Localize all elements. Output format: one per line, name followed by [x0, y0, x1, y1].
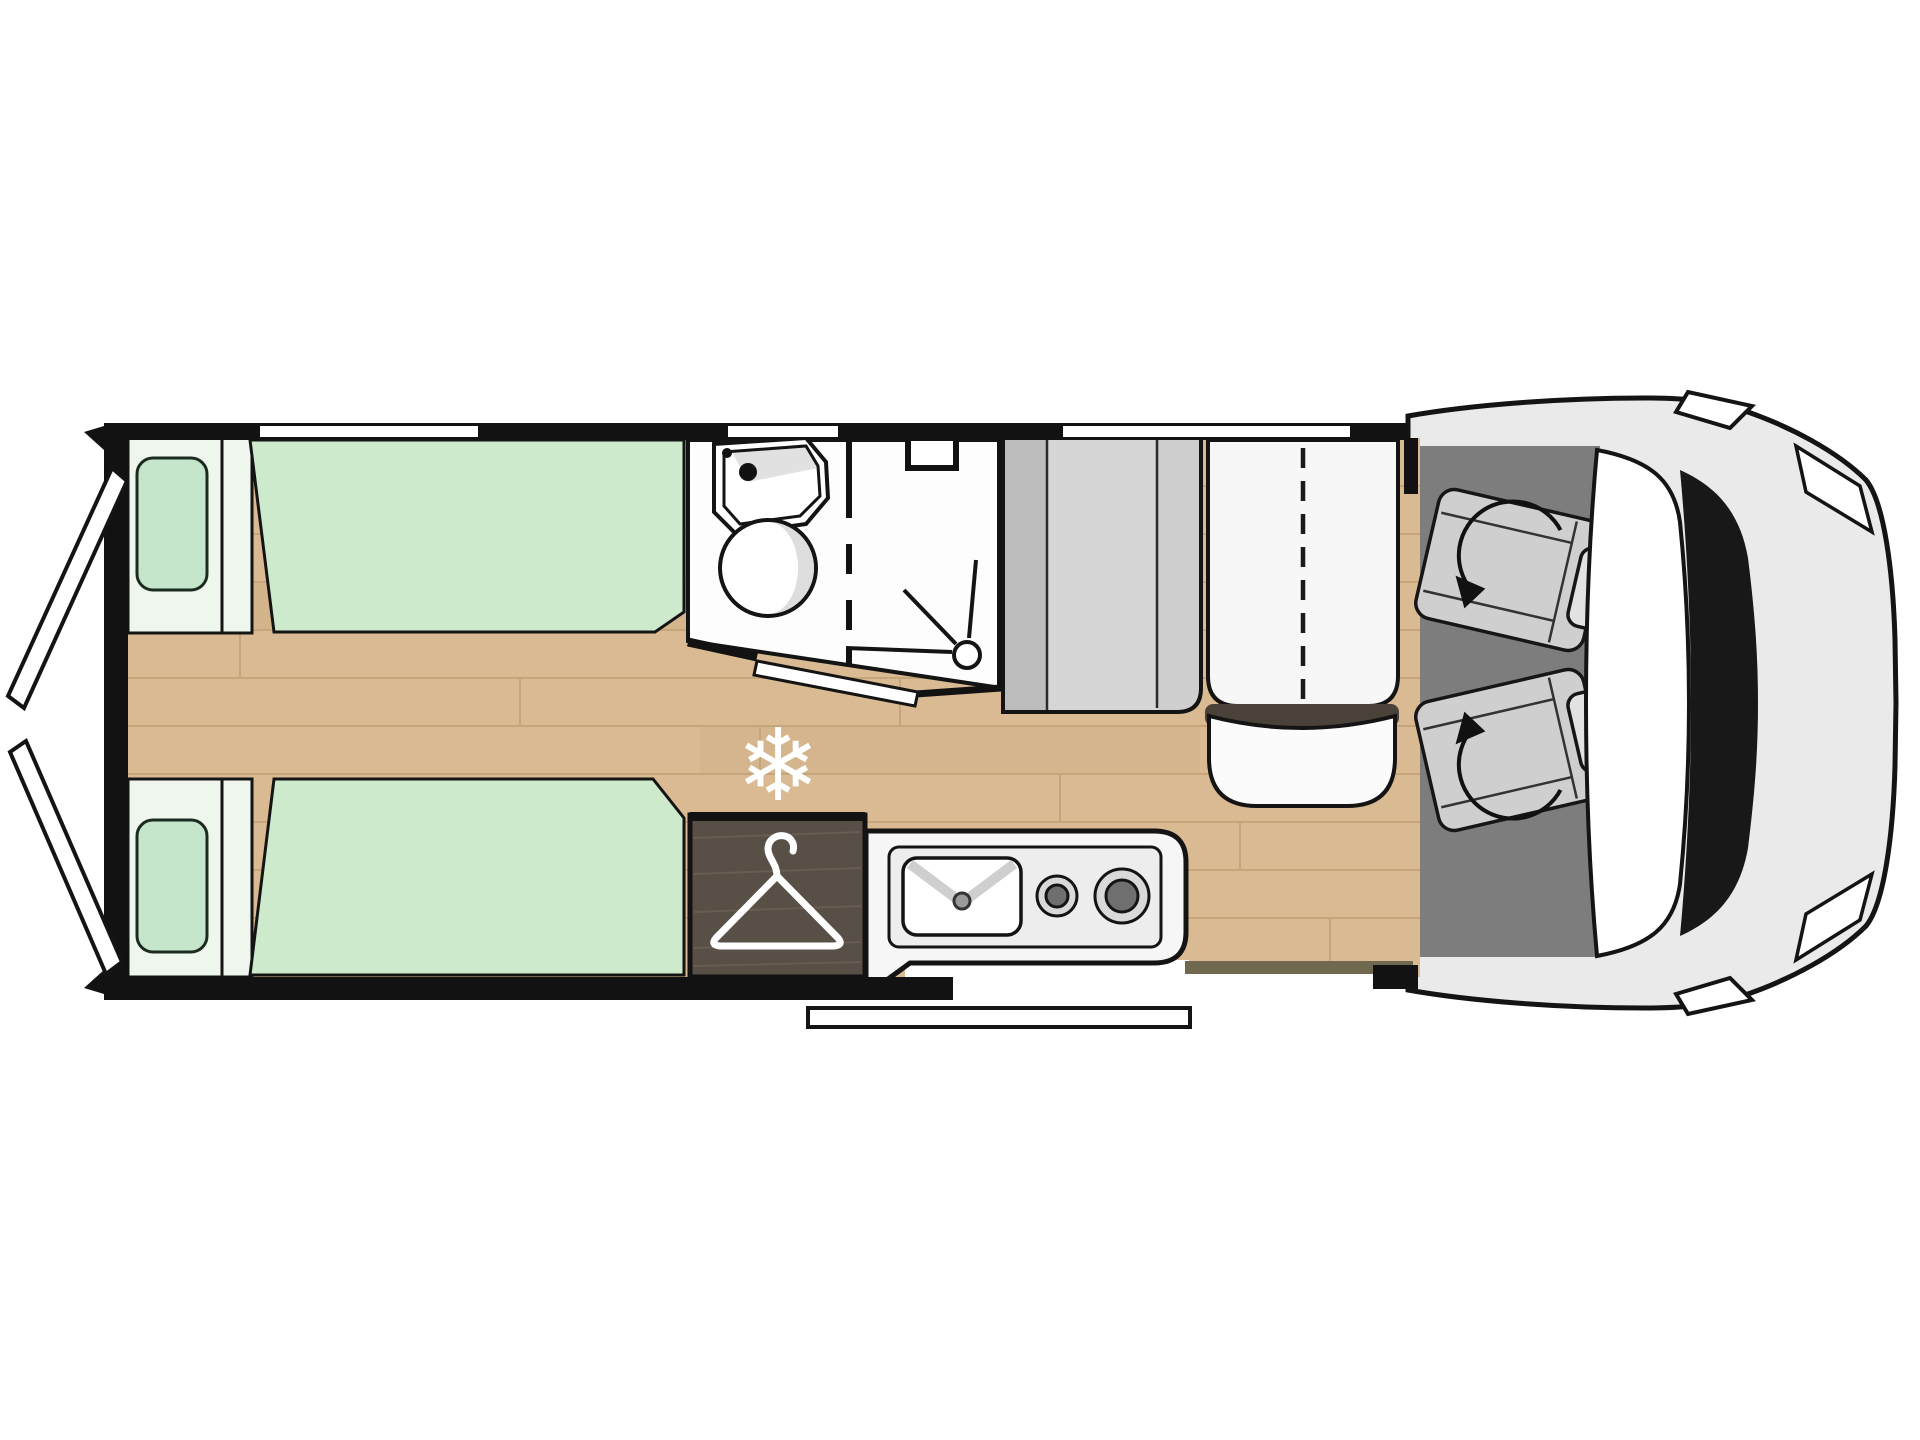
pillow-top	[137, 458, 207, 590]
fridge-snowflake-icon: ❄	[736, 707, 820, 824]
roof-vent-icon	[908, 438, 956, 468]
floorplan-canvas: ❄	[0, 0, 1920, 1440]
door-hinge-bottom	[84, 970, 104, 994]
window-washroom	[728, 426, 838, 437]
window-bedroom	[260, 426, 478, 437]
wall-stub-bpillar-top	[1404, 438, 1418, 494]
door-hinge-top	[84, 426, 104, 450]
windshield	[1586, 450, 1689, 956]
wall-stub-bpillar-bottom	[1373, 965, 1418, 989]
sink-drain-icon	[954, 893, 970, 909]
entry-step	[808, 1008, 1190, 1027]
pillow-bottom	[137, 820, 207, 952]
cabinet-panel	[1005, 440, 1047, 710]
travel-bench-backrest	[1208, 440, 1398, 706]
bed-bottom-mattress	[250, 779, 684, 975]
faucet-dot	[722, 448, 732, 458]
wall-bottom	[104, 977, 953, 1000]
travel-bench-cushion	[1209, 716, 1395, 806]
floorplan-svg: ❄	[0, 0, 1920, 1440]
hob-burner-small-core	[1046, 885, 1068, 907]
door-opening-gap	[1185, 974, 1375, 1004]
bed-top-mattress	[250, 440, 684, 632]
faucet-icon	[739, 463, 757, 481]
window-dinette	[1063, 426, 1350, 437]
hob-burner-large-core	[1106, 880, 1138, 912]
wardrobe	[690, 812, 865, 977]
cabinet-panel	[1047, 440, 1157, 710]
